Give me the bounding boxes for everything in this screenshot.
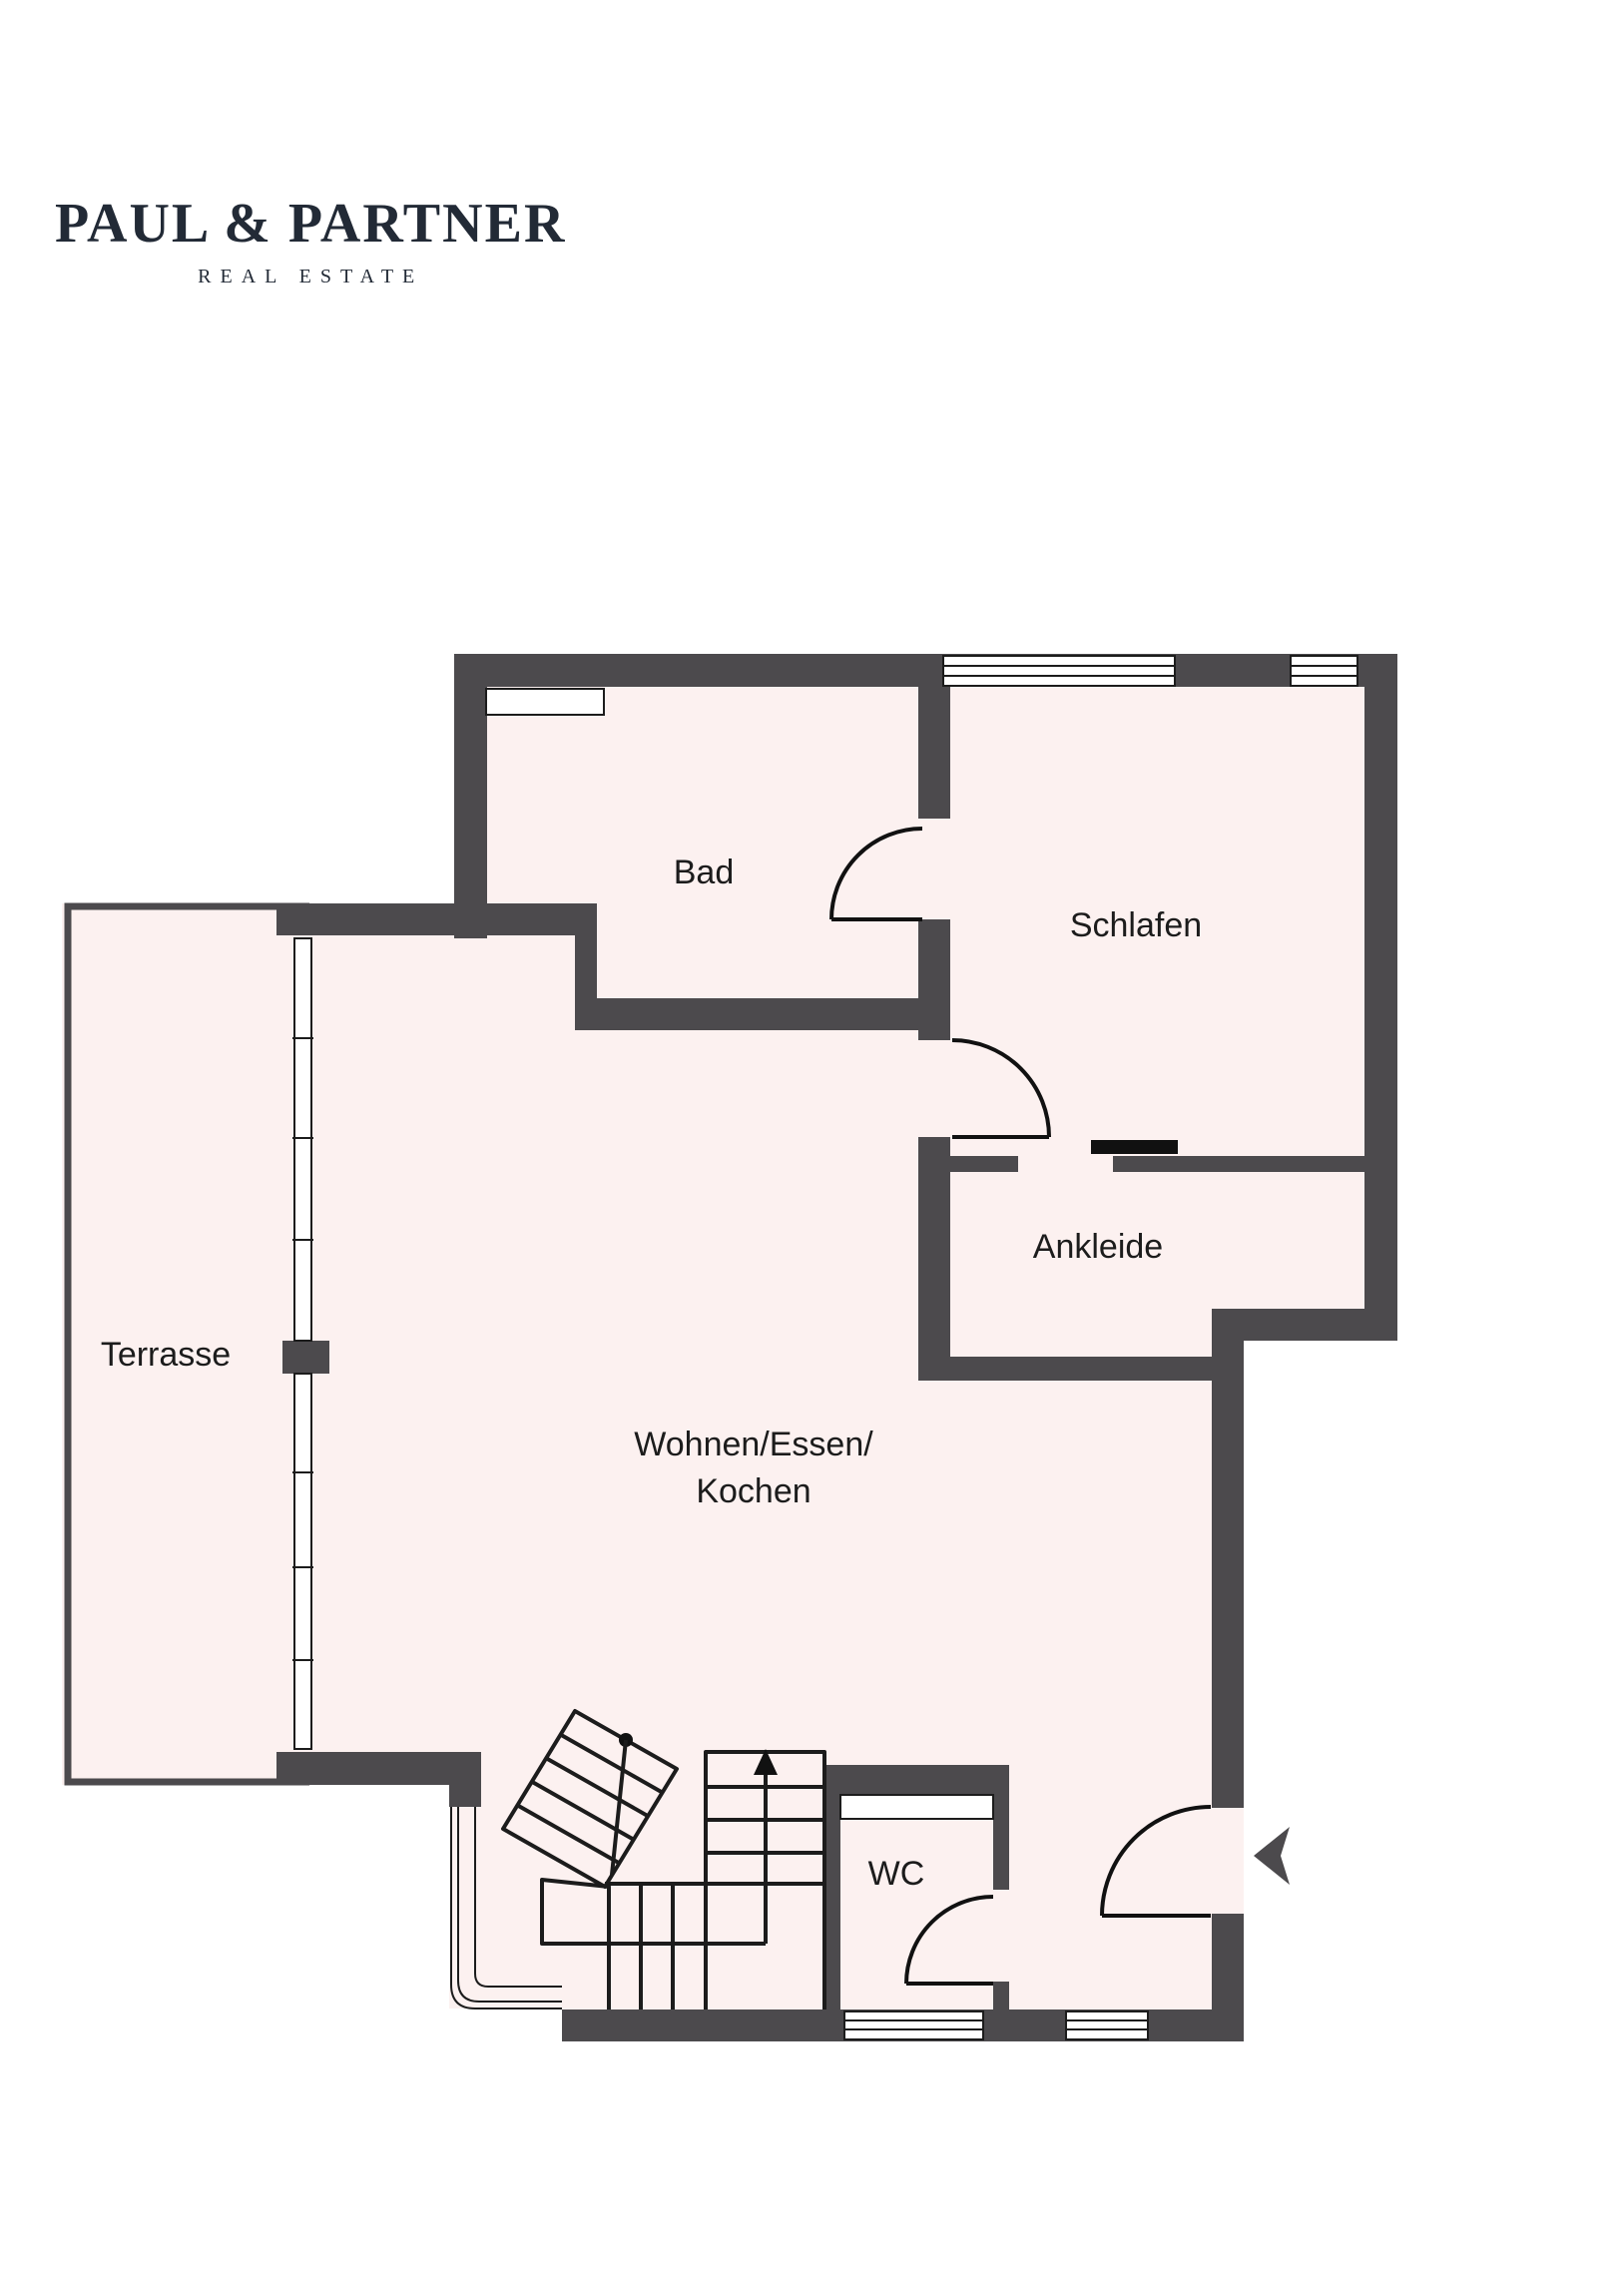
wall-divider-b [918,919,950,1040]
wall-bad-bottom [575,998,950,1030]
window-bottom-wc-icon [844,2011,983,2039]
wc-niche [840,1795,993,1819]
window-schlafen-small-icon [1291,656,1357,686]
wall-left-upper [454,687,487,938]
label-wohnen-line2: Kochen [696,1472,811,1510]
wall-divider-a [918,687,950,819]
label-terrasse: Terrasse [101,1336,231,1374]
wall-wohnen-north [276,903,597,935]
window-schlafen-large-icon [943,656,1175,686]
wall-southwest-stub [449,1785,481,1807]
bad-niche [486,689,604,715]
entrance-arrow-icon [1254,1827,1290,1885]
floorplan-drawing: Bad Schlafen Ankleide Terrasse Wohnen/Es… [0,0,1623,2296]
wall-right-upper [1364,687,1397,1341]
wall-divider-c [918,1137,950,1381]
label-ankleide: Ankleide [1033,1228,1163,1266]
wall-glazing-pier [282,1341,329,1374]
label-schlafen: Schlafen [1070,906,1202,944]
door-ankleide-sliding-icon [1091,1140,1178,1154]
wall-wc-right-upper [993,1795,1009,1890]
window-bottom-hall-icon [1066,2011,1148,2039]
label-wc: WC [868,1855,925,1893]
wall-southwest [276,1752,481,1785]
wall-top [454,654,1397,687]
wall-ankleide-north-right [1113,1156,1364,1172]
wall-wc-top [824,1765,1009,1795]
wall-wc-right-lower [993,1982,1009,2009]
label-bad: Bad [674,854,735,891]
wall-east-upper [1212,1341,1244,1808]
wall-step-right [1212,1309,1397,1341]
wall-wc-left [824,1765,840,2009]
wall-ankleide-bottom [918,1357,1244,1381]
label-wohnen-line1: Wohnen/Essen/ [634,1426,873,1463]
wall-ankleide-north-left [950,1156,1018,1172]
floorplan-page: PAUL & PARTNER REAL ESTATE [0,0,1623,2296]
